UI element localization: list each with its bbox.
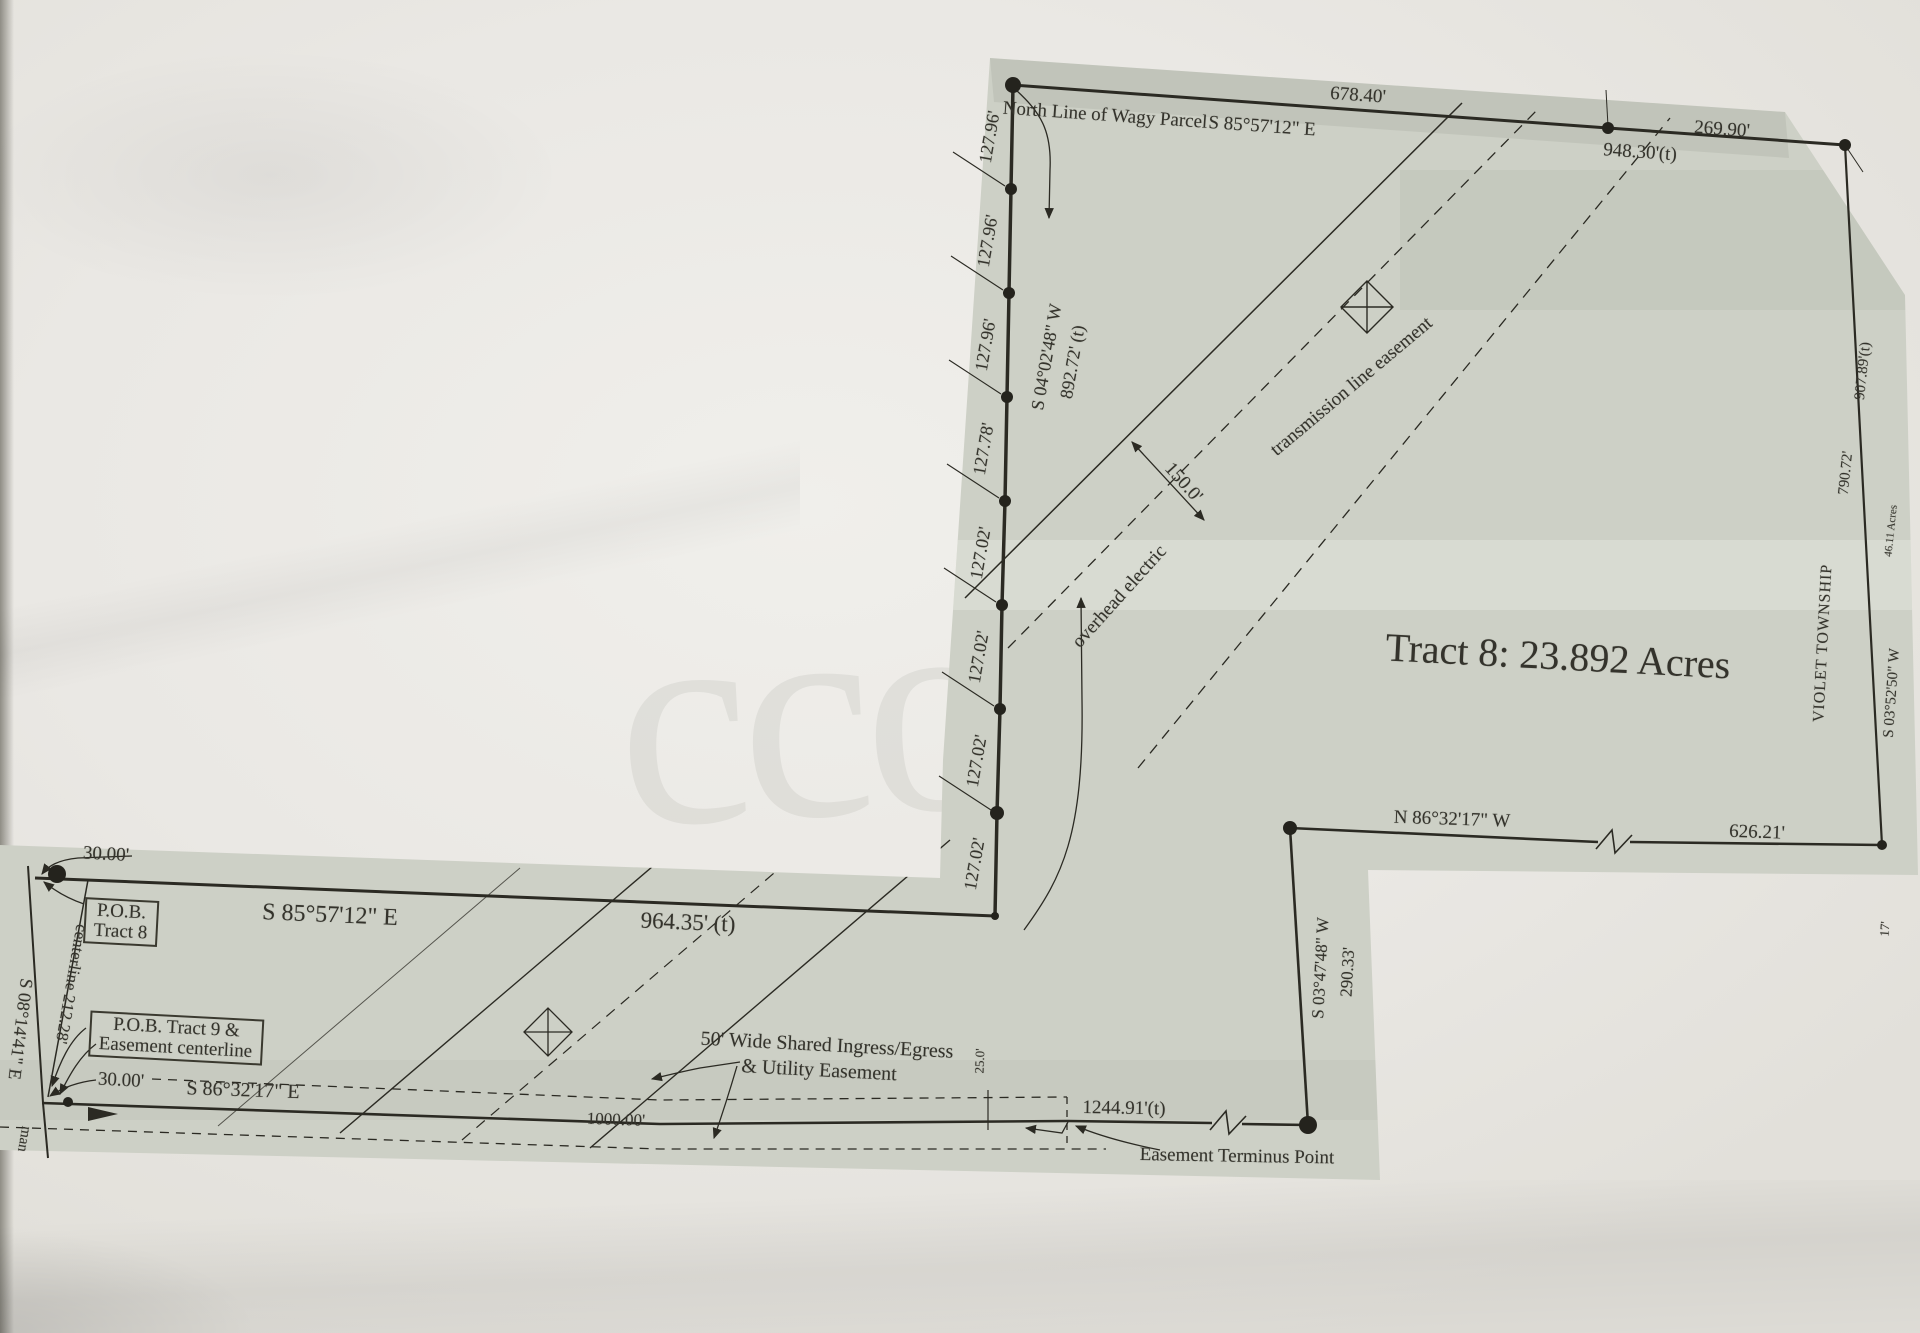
north-seg-east-dim: 269.90' — [1694, 118, 1751, 142]
strip-north-dim: 964.35' (t) — [640, 909, 736, 938]
strip-partial-dim: 1000.00' — [587, 1110, 646, 1130]
terminus-label: Easement Terminus Point — [1140, 1145, 1335, 1169]
south-upper-bearing-label: N 86°32'17" W — [1393, 808, 1510, 833]
photographed-survey-plat: cco — [0, 0, 1920, 1333]
north-seg-west-dim: 678.40' — [1330, 84, 1387, 108]
offset-south-dim: 30.00' — [97, 1070, 144, 1093]
strip-total-dim: 1244.91'(t) — [1082, 1098, 1165, 1120]
plat-print-area — [0, 58, 1920, 1180]
interior-dim: 290.33' — [1338, 947, 1359, 998]
pob-tract8-box: P.O.B. Tract 8 — [83, 897, 159, 947]
strip-south-bearing-label: S 86°32'17" E — [186, 1078, 300, 1104]
half-width-dim: 25.0' — [973, 1048, 988, 1074]
pob-tract8-line2: Tract 8 — [93, 921, 148, 944]
pob-tract9-box: P.O.B. Tract 9 & Easement centerline — [88, 1011, 264, 1066]
south-upper-dim: 626.21' — [1729, 822, 1785, 844]
offset-north-dim: 30.00' — [82, 844, 129, 867]
corner-fragment-dim: 17' — [1877, 921, 1892, 937]
